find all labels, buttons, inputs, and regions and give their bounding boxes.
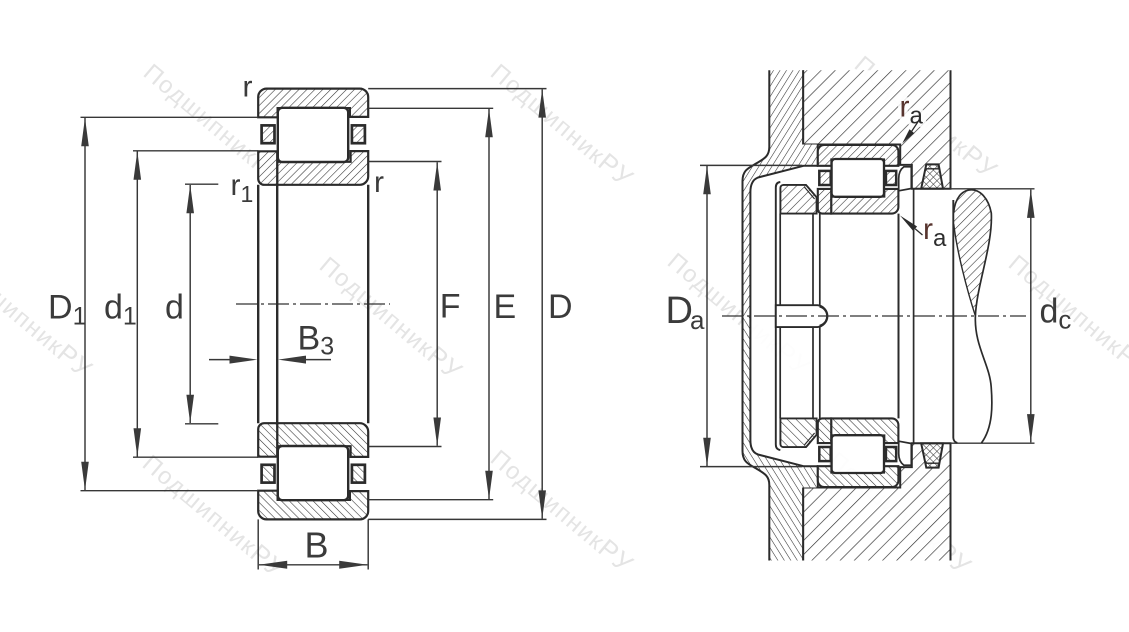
svg-text:d: d xyxy=(165,289,184,327)
svg-text:F: F xyxy=(440,288,461,326)
svg-text:B: B xyxy=(305,525,329,566)
svg-text:r: r xyxy=(243,71,253,104)
svg-text:E: E xyxy=(494,288,517,326)
svg-text:r: r xyxy=(374,166,384,199)
svg-text:D: D xyxy=(548,288,573,326)
